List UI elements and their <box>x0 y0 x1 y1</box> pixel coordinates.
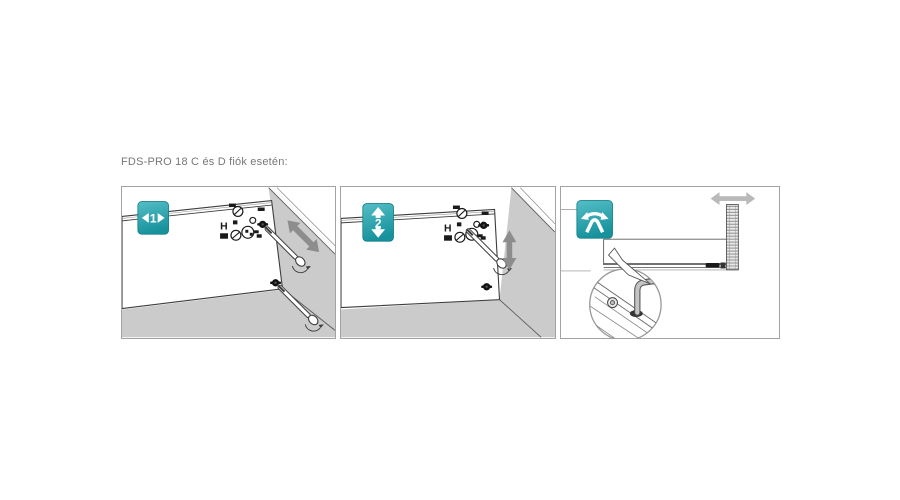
marking-bar <box>482 211 489 214</box>
step-3-illustration <box>561 187 779 338</box>
page-title: FDS-PRO 18 C és D fiók esetén: <box>121 156 288 168</box>
step-1-badge: 1 <box>138 202 169 235</box>
step-number: 1 <box>150 211 157 225</box>
panel-step-3 <box>560 186 780 339</box>
marking-bar <box>254 230 259 233</box>
panel-step-2: 2 <box>340 186 556 339</box>
marking-bar <box>258 208 265 211</box>
instruction-page: H FDS-PRO 18 C és D fiók esetén: <box>0 0 900 500</box>
marking-dial <box>250 217 256 223</box>
front-clip <box>706 263 720 267</box>
step-3-badge <box>577 201 613 239</box>
step-2-illustration: 2 <box>341 187 555 338</box>
threaded-screw-icon <box>726 205 738 270</box>
step-1-illustration: 1 <box>122 187 335 338</box>
step-number: 2 <box>375 216 382 230</box>
panel-step-1: 1 <box>121 186 336 339</box>
horizontal-double-arrow-icon <box>711 192 756 205</box>
marking-bar <box>478 234 483 237</box>
step-2-badge: 2 <box>363 204 394 242</box>
